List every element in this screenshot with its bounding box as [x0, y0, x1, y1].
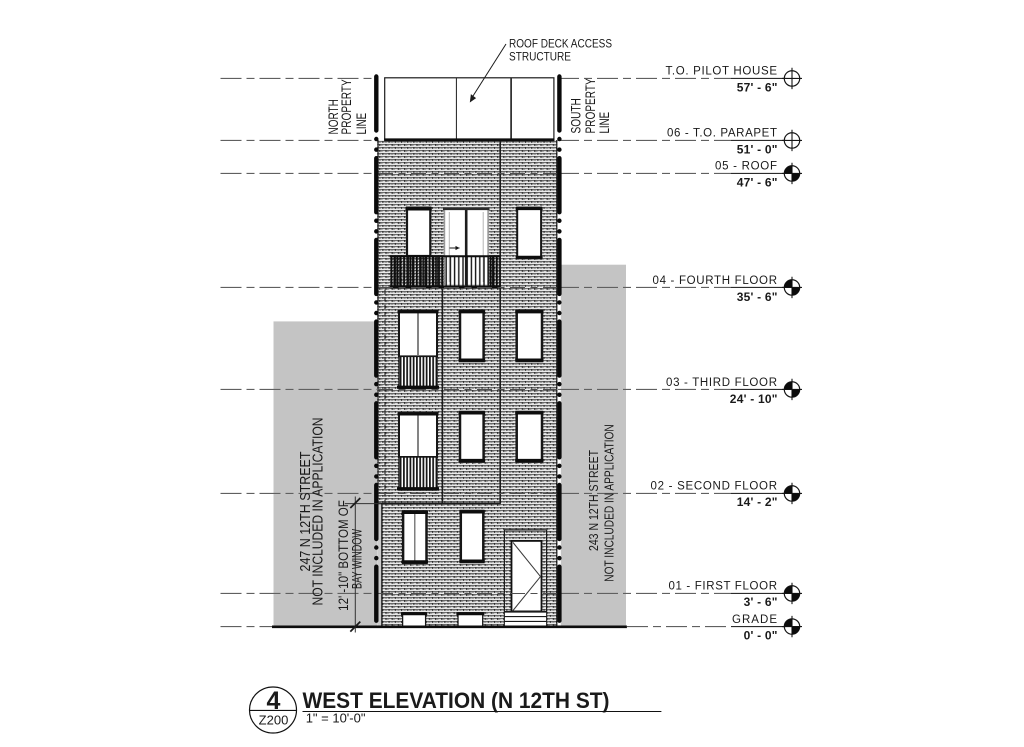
svg-text:02 - SECOND FLOOR: 02 - SECOND FLOOR [651, 480, 778, 492]
svg-text:1" = 10'-0": 1" = 10'-0" [306, 711, 366, 726]
svg-text:Z200: Z200 [259, 713, 289, 728]
svg-text:WEST ELEVATION (N 12TH ST): WEST ELEVATION (N 12TH ST) [303, 688, 610, 713]
svg-text:01 - FIRST FLOOR: 01 - FIRST FLOOR [669, 580, 778, 592]
svg-text:BAY WINDOW: BAY WINDOW [350, 529, 365, 589]
svg-text:GRADE: GRADE [732, 614, 777, 626]
svg-text:35' - 6": 35' - 6" [737, 290, 778, 304]
svg-text:04 - FOURTH FLOOR: 04 - FOURTH FLOOR [653, 275, 778, 287]
svg-text:STRUCTURE: STRUCTURE [509, 52, 571, 64]
svg-text:4: 4 [267, 687, 281, 715]
svg-text:24' - 10": 24' - 10" [730, 392, 778, 406]
svg-text:LINE: LINE [353, 113, 369, 135]
svg-text:14' - 2": 14' - 2" [737, 495, 778, 509]
svg-text:243 N 12TH STREET: 243 N 12TH STREET [586, 450, 601, 551]
svg-text:3' - 6": 3' - 6" [744, 595, 778, 609]
svg-text:03 - THIRD FLOOR: 03 - THIRD FLOOR [666, 377, 777, 389]
svg-text:NOT INCLUDED IN APPLICATION: NOT INCLUDED IN APPLICATION [310, 418, 327, 606]
svg-text:ROOF DECK ACCESS: ROOF DECK ACCESS [509, 39, 612, 51]
svg-text:57' - 6": 57' - 6" [737, 80, 778, 94]
svg-text:51' - 0": 51' - 0" [737, 142, 778, 156]
svg-text:05 - ROOF: 05 - ROOF [715, 161, 777, 173]
svg-text:PROPERTY: PROPERTY [338, 79, 354, 135]
svg-text:06 - T.O. PARAPET: 06 - T.O. PARAPET [667, 128, 777, 140]
svg-text:T.O. PILOT HOUSE: T.O. PILOT HOUSE [666, 66, 778, 78]
svg-text:0' - 0": 0' - 0" [744, 629, 778, 643]
svg-text:NOT INCLUDED IN APPLICATION: NOT INCLUDED IN APPLICATION [601, 424, 616, 582]
svg-text:47' - 6": 47' - 6" [737, 175, 778, 189]
svg-text:LINE: LINE [596, 112, 612, 134]
